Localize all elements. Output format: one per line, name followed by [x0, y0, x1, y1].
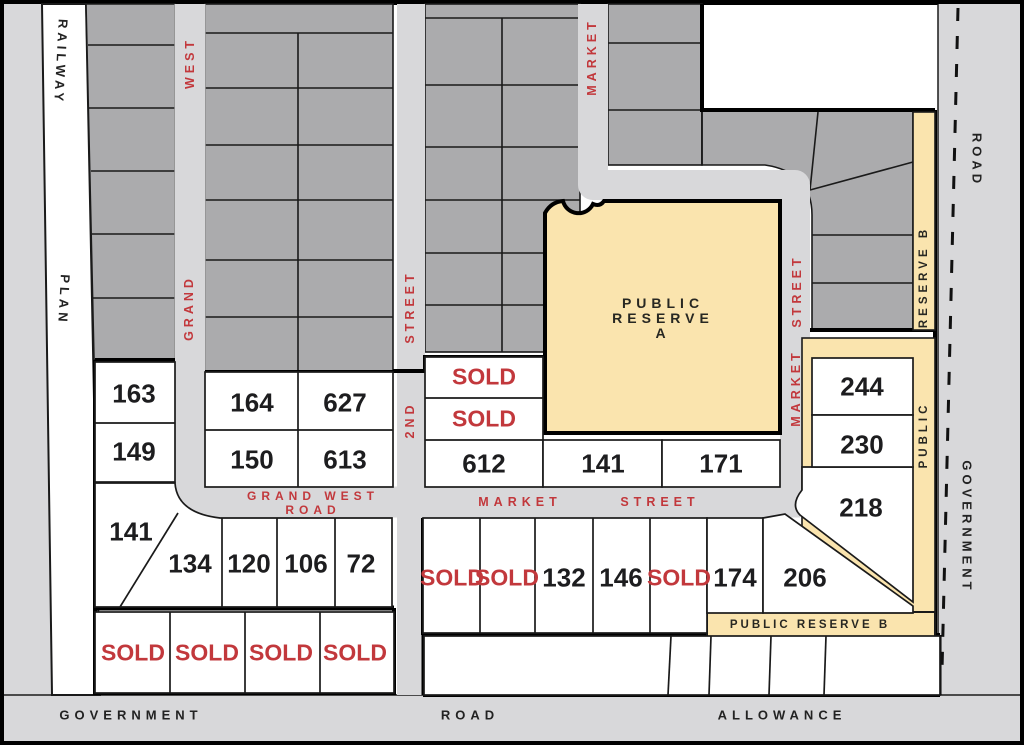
lot-613-label: 613	[323, 445, 366, 476]
street-label-market-right: MARKET	[789, 349, 803, 426]
plat-map: RAILWAY PLAN ROAD GOVERNMENT GOVERNMENT …	[0, 0, 1024, 745]
street-label-2nd: 2ND	[403, 401, 417, 438]
street-label-market-top: MARKET	[585, 18, 599, 95]
lot-sold-2-label: SOLD	[452, 406, 516, 433]
lot-164-label: 164	[230, 388, 273, 419]
lot-146-label: 146	[599, 563, 642, 594]
lot-149-label: 149	[112, 437, 155, 468]
lot-132-label: 132	[542, 563, 585, 594]
lot-sold-7-label: SOLD	[175, 640, 239, 667]
road-label-road-right: ROAD	[970, 133, 985, 187]
parcel-bottom-strip	[424, 636, 940, 695]
lot-163-label: 163	[112, 379, 155, 410]
lot-150-label: 150	[230, 445, 273, 476]
lot-206-label: 206	[783, 563, 826, 594]
lot-134-label: 134	[168, 549, 211, 580]
road-label-government-bottom: GOVERNMENT	[59, 708, 202, 723]
street-label-grand: GRAND	[182, 275, 196, 341]
road-label-road-bottom: ROAD	[441, 708, 499, 723]
reserve-a-label-line2: RESERVE	[612, 310, 714, 326]
lot-218-label: 218	[839, 493, 882, 524]
lot-627-label: 627	[323, 388, 366, 419]
street-label-grand-west: GRAND WEST	[247, 489, 379, 503]
lot-sold-1-label: SOLD	[452, 364, 516, 391]
road-label-plan: PLAN	[55, 274, 73, 326]
lot-244-label: 244	[840, 372, 883, 403]
street-label-market-h: MARKET	[478, 495, 561, 509]
road-label-government-right: GOVERNMENT	[960, 460, 975, 593]
lot-612-label: 612	[462, 449, 505, 480]
lot-sold-4-label: SOLD	[475, 565, 539, 592]
public-vertical-label: PUBLIC	[918, 402, 930, 469]
reserve-a-label-line3: A	[655, 325, 670, 341]
gray-block-a	[86, 4, 175, 360]
lot-72-label: 72	[347, 549, 376, 580]
lot-141-mid-label: 141	[581, 449, 624, 480]
lot-171-label: 171	[699, 449, 742, 480]
street-label-grand-west-road: ROAD	[285, 503, 340, 517]
lot-230-label: 230	[840, 430, 883, 461]
street-label-2nd-street: STREET	[403, 270, 417, 343]
reserve-b-vertical-label: RESERVE B	[918, 226, 930, 328]
lot-sold-6-label: SOLD	[101, 640, 165, 667]
lot-174-label: 174	[713, 563, 756, 594]
lot-sold-8-label: SOLD	[249, 640, 313, 667]
public-reserve-b-label: PUBLIC RESERVE B	[730, 619, 890, 631]
lot-sold-9-label: SOLD	[323, 640, 387, 667]
road-label-allowance: ALLOWANCE	[718, 708, 847, 723]
reserve-a-label-line1: PUBLIC	[622, 295, 704, 311]
lot-120-label: 120	[227, 549, 270, 580]
lot-106-label: 106	[284, 549, 327, 580]
street-label-west: WEST	[183, 37, 197, 89]
street-label-street-h: STREET	[620, 495, 699, 509]
gray-block-d	[608, 4, 702, 165]
street-label-street-right: STREET	[790, 254, 804, 327]
lot-141-left-label: 141	[109, 517, 152, 548]
lot-sold-5-label: SOLD	[647, 565, 711, 592]
